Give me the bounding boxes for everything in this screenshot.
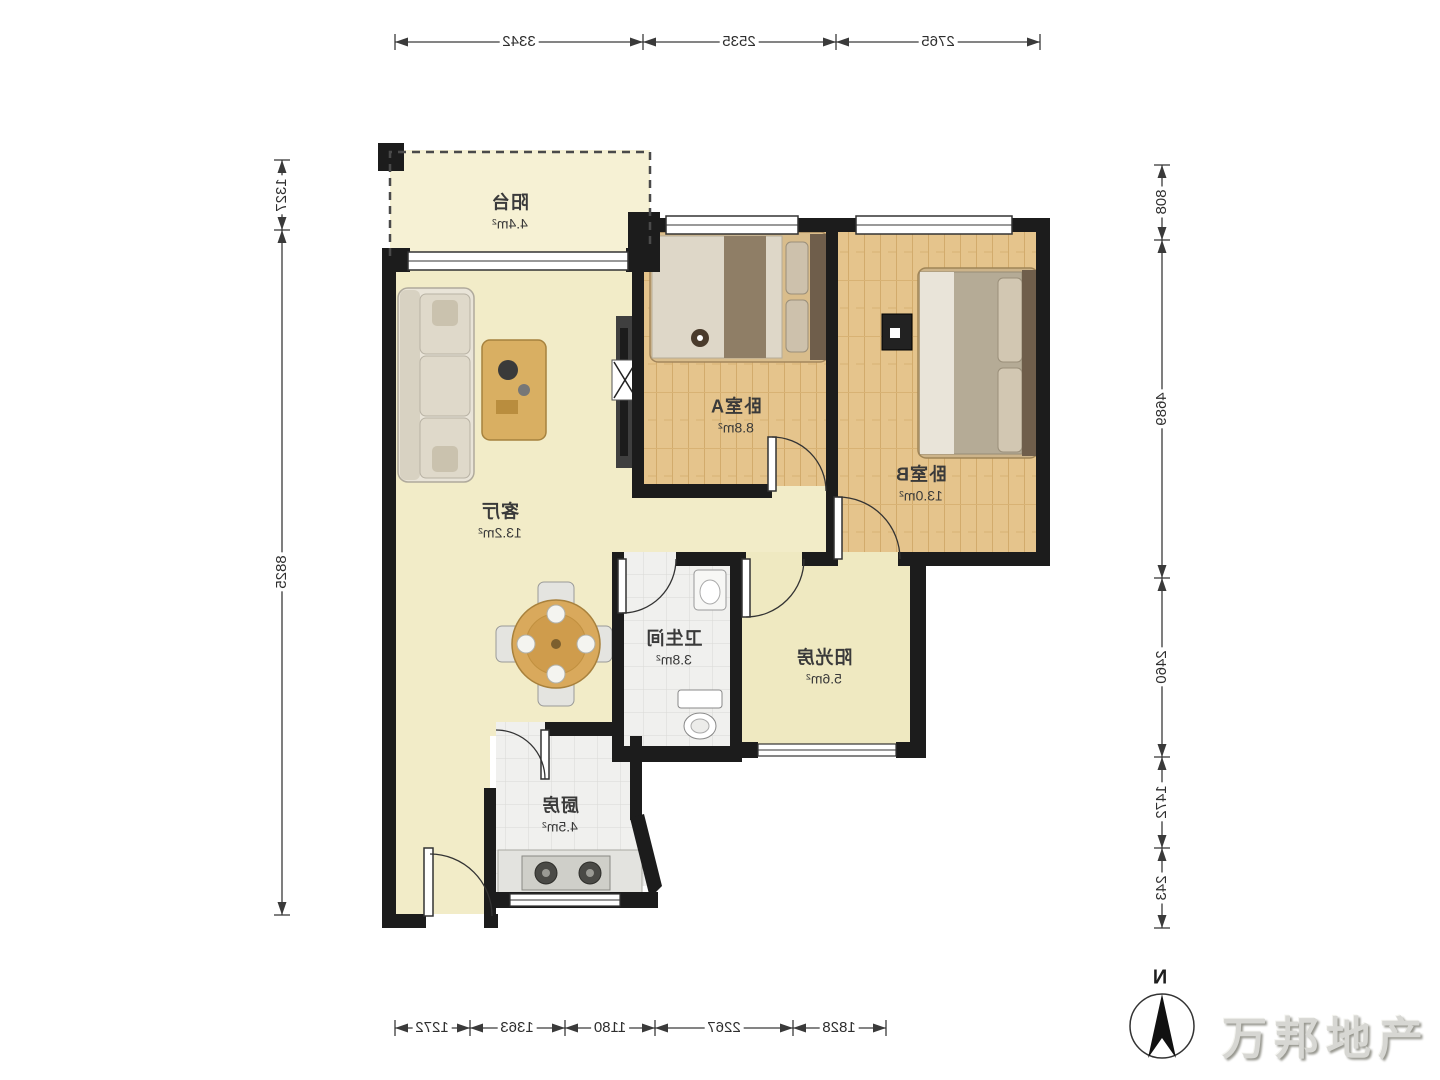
room-area-balcony: 4.4m² bbox=[491, 216, 529, 232]
room-label-sunroom: 阳光房 5.6m² bbox=[796, 644, 853, 687]
balcony-window bbox=[408, 252, 628, 270]
dim-top-3: 2765 bbox=[918, 34, 957, 50]
room-area-kitchen: 4.5m² bbox=[541, 819, 579, 835]
watermark-logo: 万邦地产 bbox=[1222, 1002, 1430, 1067]
room-name-balcony: 阳台 bbox=[491, 189, 529, 215]
compass bbox=[1130, 994, 1194, 1058]
dim-top-2: 2535 bbox=[719, 34, 758, 50]
room-name-bathroom: 卫生间 bbox=[646, 625, 703, 651]
bedroom-a-window bbox=[666, 216, 798, 234]
dim-bottom-4: 2267 bbox=[704, 1020, 743, 1036]
room-label-living: 客厅 13.2m² bbox=[478, 498, 522, 541]
room-name-bedroom-a: 卧室A bbox=[710, 393, 762, 419]
kitchen-counter bbox=[498, 850, 642, 894]
kitchen-window bbox=[510, 894, 620, 906]
dim-right-1: 808 bbox=[1154, 186, 1170, 217]
room-area-living: 13.2m² bbox=[478, 525, 522, 541]
dim-top-1: 3342 bbox=[499, 34, 538, 50]
dim-bottom-1: 1272 bbox=[412, 1020, 451, 1036]
dim-left-2: 8825 bbox=[274, 552, 290, 591]
room-area-bathroom: 3.8m² bbox=[646, 652, 703, 668]
floor-plan-graphic bbox=[0, 0, 1440, 1080]
dim-right-5: 243 bbox=[1154, 872, 1170, 903]
room-area-bedroom-b: 13.0m² bbox=[895, 488, 947, 504]
room-label-kitchen: 厨房 4.5m² bbox=[541, 792, 579, 835]
dim-bottom-5: 1828 bbox=[819, 1020, 858, 1036]
room-area-bedroom-a: 8.8m² bbox=[710, 420, 762, 436]
dim-chain-left bbox=[274, 160, 290, 915]
compass-needle bbox=[1148, 994, 1176, 1058]
sunroom-window bbox=[758, 744, 896, 756]
dim-right-4: 1472 bbox=[1154, 782, 1170, 821]
dim-right-2: 4689 bbox=[1154, 389, 1170, 428]
floor-plan-page: 3342 2535 2765 1327 8825 808 4689 2460 1… bbox=[0, 0, 1440, 1080]
coffee-table bbox=[482, 340, 546, 440]
room-label-bedroom-b: 卧室B 13.0m² bbox=[895, 461, 947, 504]
dim-chain-bottom bbox=[395, 1020, 886, 1036]
compass-north-label: N bbox=[1153, 967, 1167, 990]
room-name-bedroom-b: 卧室B bbox=[895, 461, 947, 487]
room-name-sunroom: 阳光房 bbox=[796, 644, 853, 670]
bed-a bbox=[650, 232, 828, 362]
dim-bottom-3: 1180 bbox=[591, 1020, 629, 1036]
room-label-bedroom-a: 卧室A 8.8m² bbox=[710, 393, 762, 436]
room-name-living: 客厅 bbox=[478, 498, 522, 524]
room-label-bathroom: 卫生间 3.8m² bbox=[646, 625, 703, 668]
room-area-sunroom: 5.6m² bbox=[796, 671, 853, 687]
dim-bottom-2: 1363 bbox=[497, 1020, 536, 1036]
bedroom-b-window bbox=[856, 216, 1012, 234]
sofa bbox=[398, 288, 474, 482]
dim-left-1: 1327 bbox=[274, 175, 290, 214]
room-label-balcony: 阳台 4.4m² bbox=[491, 189, 529, 232]
dim-right-3: 2460 bbox=[1154, 647, 1170, 686]
room-name-kitchen: 厨房 bbox=[541, 792, 579, 818]
